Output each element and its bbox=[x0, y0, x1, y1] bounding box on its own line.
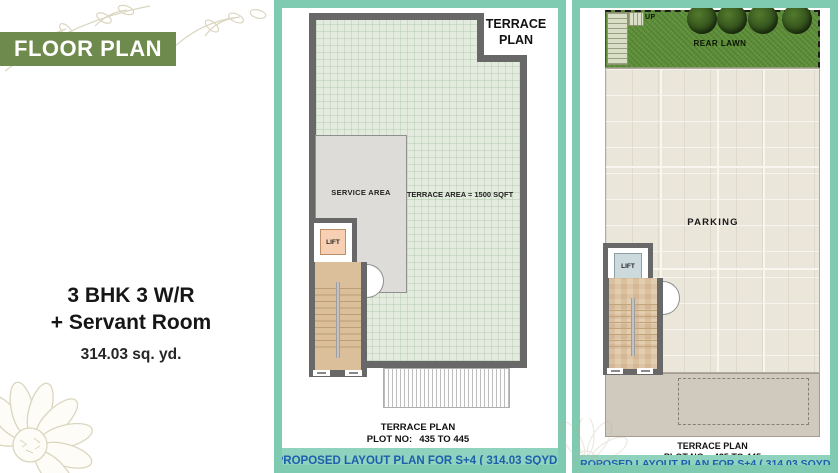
lift-cabin: LIFT bbox=[614, 253, 642, 279]
lift-label: LIFT bbox=[326, 239, 340, 246]
lift-shaft: LIFT bbox=[309, 218, 357, 262]
proposed-plan-banner: PROPOSED LAYOUT PLAN FOR S+4 ( 314.03 SQ… bbox=[274, 448, 566, 473]
window-mark bbox=[349, 372, 358, 374]
up-label: UP bbox=[645, 14, 656, 21]
staircase bbox=[603, 278, 663, 375]
driveway bbox=[605, 373, 820, 437]
driveway-hatch bbox=[383, 368, 510, 408]
plan-caption-plot: PLOT NO: 435 TO 445 bbox=[309, 434, 527, 445]
window-mark bbox=[317, 372, 326, 374]
window-mark bbox=[641, 370, 650, 372]
stair-railing bbox=[336, 282, 340, 358]
window-opening bbox=[607, 368, 623, 374]
parking-label: PARKING bbox=[668, 217, 758, 228]
tree bbox=[748, 4, 778, 34]
unit-type-line-2: + Servant Room bbox=[6, 310, 256, 337]
staircase bbox=[309, 262, 367, 377]
parking-divider bbox=[763, 69, 765, 372]
window-opening bbox=[313, 370, 330, 376]
terrace-area-label: TERRACE AREA = 1500 SQFT bbox=[397, 190, 523, 199]
floor-plan-banner: FLOOR PLAN bbox=[0, 32, 176, 66]
tree bbox=[687, 4, 717, 34]
plan-caption-title: TERRACE PLAN bbox=[309, 422, 527, 433]
layout-plan-panel: UP REAR LAWN PARKING LIFT bbox=[572, 0, 838, 473]
window-mark bbox=[611, 370, 620, 372]
garden-steps bbox=[607, 12, 628, 65]
unit-area: 314.03 sq. yd. bbox=[6, 346, 256, 364]
plan-caption-title: TERRACE PLAN bbox=[605, 441, 820, 451]
window-opening bbox=[345, 370, 362, 376]
terrace-plan-corner-label: TERRACE PLAN bbox=[480, 16, 552, 49]
unit-info: 3 BHK 3 W/R + Servant Room 314.03 sq. yd… bbox=[6, 283, 256, 364]
lift-label: LIFT bbox=[621, 263, 635, 270]
floor-plan-title: FLOOR PLAN bbox=[14, 36, 162, 62]
driveway-dashed-outline bbox=[678, 378, 809, 425]
proposed-plan-banner-text: PROPOSED LAYOUT PLAN FOR S+4 ( 314.03 SQ… bbox=[573, 458, 837, 470]
plot-no-label: PLOT NO: bbox=[367, 434, 412, 445]
unit-type-line-1: 3 BHK 3 W/R bbox=[6, 283, 256, 310]
floor-plan-brochure: FLOOR PLAN 3 BHK 3 W/R + Servant Room 31… bbox=[0, 0, 840, 473]
stair-railing bbox=[631, 298, 635, 356]
lift-cabin: LIFT bbox=[320, 229, 346, 255]
up-steps bbox=[628, 12, 644, 26]
plot-no-value: 435 TO 445 bbox=[419, 434, 469, 445]
terrace-plan-panel: TERRACE PLAN SERVICE AREA TERRACE AREA =… bbox=[274, 0, 566, 473]
proposed-plan-banner-text: PROPOSED LAYOUT PLAN FOR S+4 ( 314.03 SQ… bbox=[276, 455, 565, 467]
flower-decoration bbox=[0, 350, 140, 473]
rear-lawn-label: REAR LAWN bbox=[675, 39, 765, 48]
proposed-plan-banner: PROPOSED LAYOUT PLAN FOR S+4 ( 314.03 SQ… bbox=[572, 455, 838, 473]
window-opening bbox=[637, 368, 653, 374]
tree bbox=[782, 4, 812, 34]
service-area-label: SERVICE AREA bbox=[331, 136, 390, 197]
tree bbox=[717, 4, 747, 34]
parking-divider bbox=[606, 166, 819, 168]
